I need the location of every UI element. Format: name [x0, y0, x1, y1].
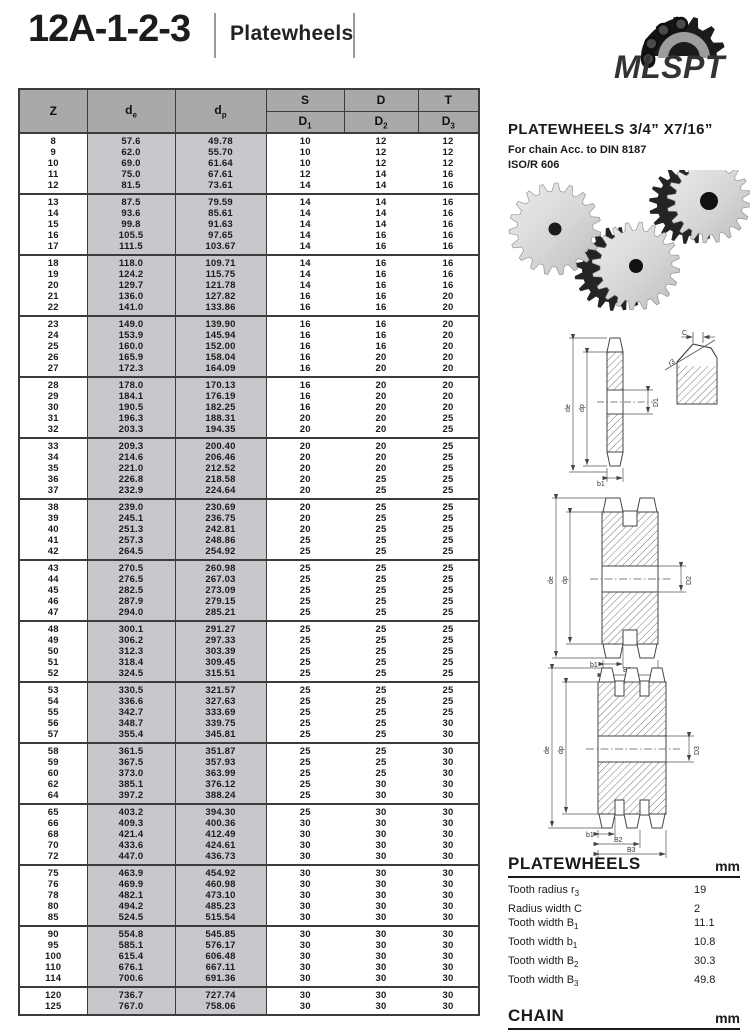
cell-dp: 327.63: [175, 696, 266, 707]
cell-d: 16: [344, 330, 418, 341]
cell-s: 30: [266, 851, 344, 865]
cell-z: 125: [19, 1001, 87, 1015]
cell-de: 312.3: [87, 646, 175, 657]
cell-dp: 194.35: [175, 424, 266, 438]
table-row: 1599.891.63141416: [19, 219, 479, 230]
cell-d: 30: [344, 1001, 418, 1015]
table-row: 1493.685.61141416: [19, 208, 479, 219]
cell-de: 245.1: [87, 513, 175, 524]
svg-text:de: de: [548, 576, 555, 584]
cell-z: 15: [19, 219, 87, 230]
cell-dp: 485.23: [175, 901, 266, 912]
cell-de: 300.1: [87, 621, 175, 635]
cell-de: 136.0: [87, 291, 175, 302]
cell-dp: 218.58: [175, 474, 266, 485]
cell-s: 25: [266, 574, 344, 585]
cell-s: 25: [266, 596, 344, 607]
cell-z: 25: [19, 341, 87, 352]
table-row: 39245.1236.75202525: [19, 513, 479, 524]
cell-de: 203.3: [87, 424, 175, 438]
cell-z: 19: [19, 269, 87, 280]
sprocket-left-icon: [509, 183, 601, 275]
cell-s: 30: [266, 865, 344, 879]
cell-d: 30: [344, 940, 418, 951]
cell-s: 16: [266, 402, 344, 413]
chain-spec-header: CHAIN mm: [508, 1006, 740, 1030]
page-title: 12A-1-2-3: [28, 8, 190, 51]
table-row: 53330.5321.57252525: [19, 682, 479, 696]
table-group: 1387.579.591414161493.685.611414161599.8…: [19, 194, 479, 255]
cell-dp: 339.75: [175, 718, 266, 729]
cell-s: 16: [266, 330, 344, 341]
cell-s: 20: [266, 413, 344, 424]
cell-d: 25: [344, 635, 418, 646]
table-row: 34214.6206.46202025: [19, 452, 479, 463]
cell-d: 20: [344, 363, 418, 377]
table-group: 120736.7727.74303030125767.0758.06303030: [19, 987, 479, 1015]
cell-d: 25: [344, 657, 418, 668]
cell-t: 30: [418, 851, 479, 865]
cell-s: 16: [266, 302, 344, 316]
svg-text:D2: D2: [686, 576, 693, 585]
cell-s: 20: [266, 524, 344, 535]
cell-z: 66: [19, 818, 87, 829]
spec-row: Tooth width B111.1: [508, 916, 740, 935]
cell-dp: 55.70: [175, 147, 266, 158]
cell-de: 239.0: [87, 499, 175, 513]
cell-z: 47: [19, 607, 87, 621]
cell-d: 30: [344, 879, 418, 890]
spec-value: 49.8: [694, 973, 740, 992]
table-row: 100615.4606.48303030: [19, 951, 479, 962]
cell-t: 20: [418, 363, 479, 377]
sprockets-photo: [505, 170, 750, 332]
cell-de: 118.0: [87, 255, 175, 269]
cell-s: 16: [266, 377, 344, 391]
cell-t: 30: [418, 804, 479, 818]
cell-s: 25: [266, 696, 344, 707]
cell-z: 40: [19, 524, 87, 535]
cell-d: 30: [344, 987, 418, 1001]
cell-s: 10: [266, 147, 344, 158]
cell-dp: 412.49: [175, 829, 266, 840]
table-row: 1387.579.59141416: [19, 194, 479, 208]
cell-t: 25: [418, 707, 479, 718]
cell-z: 12: [19, 180, 87, 194]
svg-text:dp: dp: [562, 576, 569, 584]
svg-text:B2: B2: [614, 837, 623, 844]
cell-de: 306.2: [87, 635, 175, 646]
cell-z: 64: [19, 790, 87, 804]
cell-dp: 297.33: [175, 635, 266, 646]
cell-t: 25: [418, 574, 479, 585]
cell-de: 554.8: [87, 926, 175, 940]
spec-row: Tooth radius r319: [508, 883, 740, 902]
cell-dp: 303.39: [175, 646, 266, 657]
cell-z: 45: [19, 585, 87, 596]
cell-d: 14: [344, 219, 418, 230]
table-row: 37232.9224.64202525: [19, 485, 479, 499]
cell-t: 20: [418, 341, 479, 352]
cell-s: 14: [266, 230, 344, 241]
cell-s: 30: [266, 962, 344, 973]
table-row: 28178.0170.13162020: [19, 377, 479, 391]
table-row: 47294.0285.21252525: [19, 607, 479, 621]
spec-value: 30.3: [694, 954, 740, 973]
cell-t: 30: [418, 718, 479, 729]
cell-s: 30: [266, 818, 344, 829]
cell-s: 25: [266, 682, 344, 696]
cell-t: 25: [418, 596, 479, 607]
cell-d: 30: [344, 851, 418, 865]
cell-dp: 176.19: [175, 391, 266, 402]
cell-dp: 139.90: [175, 316, 266, 330]
cell-z: 53: [19, 682, 87, 696]
cell-de: 463.9: [87, 865, 175, 879]
cell-t: 25: [418, 474, 479, 485]
table-row: 41257.3248.86252525: [19, 535, 479, 546]
cell-d: 12: [344, 158, 418, 169]
title-divider: [214, 13, 216, 58]
cell-de: 736.7: [87, 987, 175, 1001]
header-d2: D2: [344, 111, 418, 133]
header-z: Z: [19, 89, 87, 133]
cell-de: 178.0: [87, 377, 175, 391]
cell-t: 30: [418, 951, 479, 962]
cell-t: 16: [418, 169, 479, 180]
cell-z: 33: [19, 438, 87, 452]
cell-s: 20: [266, 513, 344, 524]
cell-t: 30: [418, 879, 479, 890]
cell-d: 25: [344, 535, 418, 546]
table-row: 54336.6327.63252525: [19, 696, 479, 707]
cell-d: 25: [344, 524, 418, 535]
cell-z: 28: [19, 377, 87, 391]
diagram-triplex-section: de dp D3 b1 B2 B3: [540, 662, 750, 862]
cell-dp: 394.30: [175, 804, 266, 818]
chain-spec-unit: mm: [715, 1010, 740, 1026]
spec-row: Tooth width B349.8: [508, 973, 740, 992]
cell-t: 12: [418, 158, 479, 169]
table-row: 78482.1473.10303030: [19, 890, 479, 901]
table-row: 27172.3164.09162020: [19, 363, 479, 377]
table-group: 18118.0109.7114161619124.2115.7514161620…: [19, 255, 479, 316]
cell-t: 25: [418, 646, 479, 657]
table-group: 90554.8545.8530303095585.1576.1730303010…: [19, 926, 479, 987]
cell-s: 16: [266, 291, 344, 302]
table-row: 43270.5260.98252525: [19, 560, 479, 574]
cell-z: 37: [19, 485, 87, 499]
table-row: 20129.7121.78141616: [19, 280, 479, 291]
table-row: 45282.5273.09252525: [19, 585, 479, 596]
brand-logo: MLSPT: [610, 2, 748, 82]
cell-t: 25: [418, 682, 479, 696]
cell-t: 30: [418, 779, 479, 790]
svg-text:b1: b1: [586, 832, 594, 839]
cell-de: 129.7: [87, 280, 175, 291]
table-row: 50312.3303.39252525: [19, 646, 479, 657]
cell-d: 30: [344, 790, 418, 804]
cell-de: 318.4: [87, 657, 175, 668]
cell-t: 30: [418, 729, 479, 743]
cell-de: 367.5: [87, 757, 175, 768]
cell-t: 12: [418, 133, 479, 147]
cell-dp: 164.09: [175, 363, 266, 377]
cell-s: 10: [266, 158, 344, 169]
chain-spec-title: CHAIN: [508, 1006, 564, 1026]
cell-dp: 285.21: [175, 607, 266, 621]
cell-s: 25: [266, 757, 344, 768]
cell-dp: 182.25: [175, 402, 266, 413]
cell-t: 16: [418, 269, 479, 280]
spec-label: Radius width C: [508, 902, 694, 917]
cell-de: 264.5: [87, 546, 175, 560]
cell-t: 25: [418, 607, 479, 621]
cell-dp: 236.75: [175, 513, 266, 524]
cell-d: 25: [344, 574, 418, 585]
spec-value: 10.8: [694, 935, 740, 954]
table-row: 76469.9460.98303030: [19, 879, 479, 890]
svg-text:r3: r3: [667, 358, 676, 367]
cell-z: 39: [19, 513, 87, 524]
table-row: 49306.2297.33252525: [19, 635, 479, 646]
spec-label: Tooth width B1: [508, 916, 694, 935]
cell-t: 25: [418, 524, 479, 535]
cell-d: 12: [344, 147, 418, 158]
cell-dp: 363.99: [175, 768, 266, 779]
cell-d: 30: [344, 912, 418, 926]
cell-s: 30: [266, 829, 344, 840]
table-group: 38239.0230.6920252539245.1236.7520252540…: [19, 499, 479, 560]
diagram-single-section: de dp D1 b1 C r3: [553, 330, 750, 493]
cell-z: 31: [19, 413, 87, 424]
cell-dp: 727.74: [175, 987, 266, 1001]
table-row: 46287.9279.15252525: [19, 596, 479, 607]
cell-z: 42: [19, 546, 87, 560]
cell-de: 57.6: [87, 133, 175, 147]
cell-t: 30: [418, 926, 479, 940]
table-row: 120736.7727.74303030: [19, 987, 479, 1001]
cell-de: 421.4: [87, 829, 175, 840]
table-row: 75463.9454.92303030: [19, 865, 479, 879]
cell-z: 78: [19, 890, 87, 901]
cell-de: 209.3: [87, 438, 175, 452]
cell-z: 55: [19, 707, 87, 718]
cell-dp: 667.11: [175, 962, 266, 973]
cell-d: 16: [344, 269, 418, 280]
cell-d: 16: [344, 230, 418, 241]
cell-z: 85: [19, 912, 87, 926]
cell-t: 16: [418, 280, 479, 291]
cell-s: 20: [266, 463, 344, 474]
spec-row: Radius width C2: [508, 902, 740, 917]
cell-de: 482.1: [87, 890, 175, 901]
cell-t: 30: [418, 743, 479, 757]
cell-z: 65: [19, 804, 87, 818]
cell-d: 30: [344, 926, 418, 940]
cell-de: 348.7: [87, 718, 175, 729]
table-row: 68421.4412.49303030: [19, 829, 479, 840]
cell-t: 25: [418, 424, 479, 438]
cell-dp: 115.75: [175, 269, 266, 280]
cell-dp: 121.78: [175, 280, 266, 291]
cell-d: 25: [344, 729, 418, 743]
cell-s: 10: [266, 133, 344, 147]
cell-d: 14: [344, 194, 418, 208]
table-row: 110676.1667.11303030: [19, 962, 479, 973]
cell-s: 25: [266, 779, 344, 790]
cell-z: 44: [19, 574, 87, 585]
cell-d: 25: [344, 560, 418, 574]
cell-s: 14: [266, 255, 344, 269]
cell-s: 16: [266, 391, 344, 402]
table-row: 70433.6424.61303030: [19, 840, 479, 851]
cell-s: 25: [266, 535, 344, 546]
cell-de: 221.0: [87, 463, 175, 474]
cell-dp: 61.64: [175, 158, 266, 169]
cell-de: 149.0: [87, 316, 175, 330]
cell-de: 294.0: [87, 607, 175, 621]
cell-de: 336.6: [87, 696, 175, 707]
cell-z: 95: [19, 940, 87, 951]
cell-t: 30: [418, 757, 479, 768]
cell-de: 99.8: [87, 219, 175, 230]
svg-text:b1: b1: [597, 481, 605, 488]
header-d1: D1: [266, 111, 344, 133]
cell-d: 30: [344, 962, 418, 973]
table-row: 38239.0230.69202525: [19, 499, 479, 513]
platewheels-spec-title: PLATEWHEELS: [508, 854, 641, 874]
cell-dp: 345.81: [175, 729, 266, 743]
table-header: Z de dp S D T D1 D2 D3: [19, 89, 479, 133]
cell-s: 25: [266, 585, 344, 596]
cell-s: 25: [266, 707, 344, 718]
cell-d: 20: [344, 352, 418, 363]
cell-de: 153.9: [87, 330, 175, 341]
cell-t: 30: [418, 987, 479, 1001]
cell-dp: 49.78: [175, 133, 266, 147]
cell-t: 20: [418, 391, 479, 402]
table-group: 58361.5351.8725253059367.5357.9325253060…: [19, 743, 479, 804]
cell-d: 25: [344, 682, 418, 696]
spec-row: Tooth width B230.3: [508, 954, 740, 973]
cell-t: 20: [418, 352, 479, 363]
table-row: 1281.573.61141416: [19, 180, 479, 194]
cell-d: 16: [344, 341, 418, 352]
table-row: 29184.1176.19162020: [19, 391, 479, 402]
table-group: 75463.9454.9230303076469.9460.9830303078…: [19, 865, 479, 926]
cell-z: 51: [19, 657, 87, 668]
spec-value: 2: [694, 902, 740, 917]
cell-z: 14: [19, 208, 87, 219]
cell-d: 16: [344, 241, 418, 255]
table-row: 35221.0212.52202025: [19, 463, 479, 474]
cell-s: 25: [266, 546, 344, 560]
cell-dp: 357.93: [175, 757, 266, 768]
section-subtext-1: For chain Acc. to DIN 8187: [508, 144, 646, 156]
cell-s: 25: [266, 560, 344, 574]
table-row: 30190.5182.25162020: [19, 402, 479, 413]
cell-z: 72: [19, 851, 87, 865]
cell-dp: 145.94: [175, 330, 266, 341]
cell-dp: 79.59: [175, 194, 266, 208]
cell-d: 20: [344, 413, 418, 424]
cell-t: 25: [418, 413, 479, 424]
cell-d: 30: [344, 840, 418, 851]
table-row: 58361.5351.87252530: [19, 743, 479, 757]
cell-dp: 291.27: [175, 621, 266, 635]
table-row: 18118.0109.71141616: [19, 255, 479, 269]
table-row: 962.055.70101212: [19, 147, 479, 158]
cell-s: 25: [266, 790, 344, 804]
cell-de: 342.7: [87, 707, 175, 718]
cell-t: 30: [418, 1001, 479, 1015]
cell-dp: 279.15: [175, 596, 266, 607]
cell-t: 25: [418, 585, 479, 596]
cell-t: 16: [418, 230, 479, 241]
cell-d: 25: [344, 646, 418, 657]
cell-s: 20: [266, 438, 344, 452]
cell-s: 25: [266, 646, 344, 657]
cell-z: 29: [19, 391, 87, 402]
cell-s: 25: [266, 768, 344, 779]
cell-s: 30: [266, 940, 344, 951]
cell-z: 114: [19, 973, 87, 987]
cell-dp: 315.51: [175, 668, 266, 682]
cell-s: 16: [266, 363, 344, 377]
cell-de: 75.0: [87, 169, 175, 180]
table-row: 59367.5357.93252530: [19, 757, 479, 768]
cell-z: 16: [19, 230, 87, 241]
cell-z: 70: [19, 840, 87, 851]
cell-t: 12: [418, 147, 479, 158]
svg-text:D1: D1: [653, 398, 660, 407]
cell-d: 20: [344, 463, 418, 474]
cell-t: 25: [418, 535, 479, 546]
table-group: 53330.5321.5725252554336.6327.6325252555…: [19, 682, 479, 743]
cell-de: 232.9: [87, 485, 175, 499]
cell-de: 190.5: [87, 402, 175, 413]
cell-dp: 67.61: [175, 169, 266, 180]
cell-s: 16: [266, 341, 344, 352]
cell-dp: 460.98: [175, 879, 266, 890]
cell-dp: 85.61: [175, 208, 266, 219]
cell-dp: 606.48: [175, 951, 266, 962]
cell-t: 30: [418, 818, 479, 829]
cell-z: 120: [19, 987, 87, 1001]
section-heading: PLATEWHEELS 3/4” X7/16”: [508, 121, 713, 138]
table-row: 66409.3400.36303030: [19, 818, 479, 829]
table-row: 857.649.78101212: [19, 133, 479, 147]
cell-z: 59: [19, 757, 87, 768]
cell-de: 276.5: [87, 574, 175, 585]
table-row: 25160.0152.00161620: [19, 341, 479, 352]
cell-s: 14: [266, 219, 344, 230]
table-row: 36226.8218.58202525: [19, 474, 479, 485]
cell-s: 16: [266, 316, 344, 330]
cell-d: 25: [344, 668, 418, 682]
header-s: S: [266, 89, 344, 111]
table-row: 60373.0363.99252530: [19, 768, 479, 779]
cell-d: 12: [344, 133, 418, 147]
table-row: 62385.1376.12253030: [19, 779, 479, 790]
table-group: 48300.1291.2725252549306.2297.3325252550…: [19, 621, 479, 682]
spec-label: Tooth width b1: [508, 935, 694, 954]
table-row: 24153.9145.94161620: [19, 330, 479, 341]
table-row: 22141.0133.86161620: [19, 302, 479, 316]
cell-de: 105.5: [87, 230, 175, 241]
cell-z: 58: [19, 743, 87, 757]
